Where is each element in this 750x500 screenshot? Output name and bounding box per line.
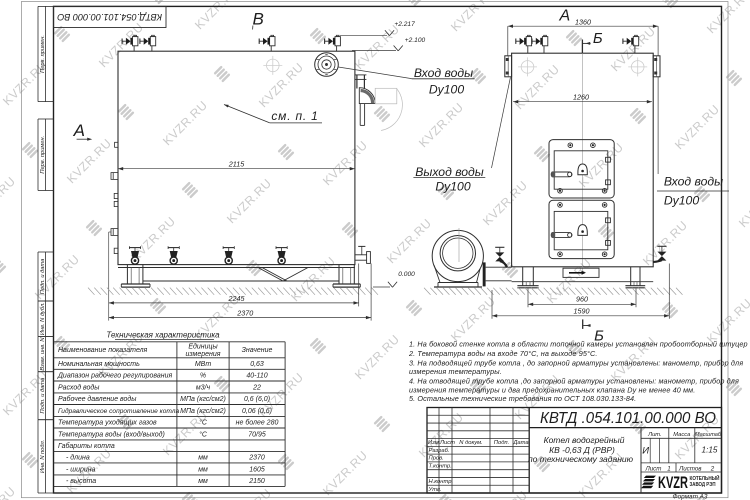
svg-text:Значение: Значение bbox=[242, 347, 273, 354]
svg-text:%: % bbox=[200, 373, 206, 380]
svg-text:мм: мм bbox=[198, 455, 208, 462]
svg-text:2. Температура воды на входе: 2. Температура воды на входе 70°С, на вы… bbox=[408, 349, 598, 358]
svg-text:Т.контр.: Т.контр. bbox=[429, 463, 452, 469]
svg-text:Б: Б bbox=[593, 30, 603, 47]
svg-text:Утв.: Утв. bbox=[428, 487, 442, 493]
svg-text:КВТД .054.101.00.000 ВО: КВТД .054.101.00.000 ВО bbox=[540, 410, 716, 427]
svg-text:Вход воды: Вход воды bbox=[414, 66, 473, 80]
svg-text:Габариты котла: Габариты котла bbox=[58, 442, 115, 450]
svg-text:2150: 2150 bbox=[248, 478, 265, 485]
svg-text:1: 1 bbox=[667, 465, 670, 472]
svg-text:+2.100: +2.100 bbox=[405, 37, 426, 44]
svg-text:2370: 2370 bbox=[236, 308, 253, 317]
svg-text:1360: 1360 bbox=[575, 17, 591, 26]
svg-text:1. На боковой стенке котла в: 1. На боковой стенке котла в области топ… bbox=[409, 340, 748, 349]
svg-text:Подп. и дата: Подп. и дата bbox=[40, 259, 46, 295]
svg-text:Номинальная мощность: Номинальная мощность bbox=[58, 361, 140, 368]
svg-text:А: А bbox=[559, 8, 571, 25]
svg-text:м3/ч: м3/ч bbox=[196, 385, 211, 392]
svg-text:Лист: Лист bbox=[645, 465, 662, 472]
svg-text:- высота: - высота bbox=[66, 478, 96, 485]
svg-text:Изм.: Изм. bbox=[428, 440, 440, 446]
svg-text:измерения: измерения bbox=[185, 351, 220, 358]
svg-text:по техническому заданию: по техническому заданию bbox=[528, 454, 634, 464]
svg-text:МВт: МВт bbox=[195, 361, 212, 368]
svg-text:И: И bbox=[642, 446, 649, 457]
svg-text:4. На отводящей трубе котла ,: 4. На отводящей трубе котла ,до запорной… bbox=[409, 376, 739, 385]
svg-text:2245: 2245 bbox=[228, 294, 246, 303]
svg-text:Температура воды (вход/выход): Температура воды (вход/выход) bbox=[58, 431, 165, 439]
svg-text:Техническая характеристика: Техническая характеристика bbox=[106, 331, 220, 340]
svg-text:Листов: Листов bbox=[678, 465, 702, 472]
svg-text:N докум.: N докум. bbox=[459, 440, 482, 446]
svg-text:Инв. N подл.: Инв. N подл. bbox=[40, 440, 46, 473]
svg-text:1605: 1605 bbox=[249, 467, 265, 474]
svg-text:В: В bbox=[253, 9, 264, 28]
svg-text:KVZR: KVZR bbox=[658, 474, 688, 492]
svg-text:Инв. N дубл.: Инв. N дубл. bbox=[40, 302, 46, 335]
svg-text:Разраб.: Разраб. bbox=[429, 448, 450, 454]
svg-text:Dy100: Dy100 bbox=[664, 194, 699, 208]
svg-text:70/95: 70/95 bbox=[248, 432, 266, 439]
svg-text:22: 22 bbox=[252, 385, 261, 392]
svg-text:0,06 (0,6): 0,06 (0,6) bbox=[242, 408, 272, 415]
svg-text:0,6 (6,0): 0,6 (6,0) bbox=[244, 396, 270, 403]
svg-text:МПа (кгс/см2): МПа (кгс/см2) bbox=[180, 408, 226, 415]
svg-text:1590: 1590 bbox=[574, 307, 590, 316]
svg-text:1:15: 1:15 bbox=[702, 445, 718, 454]
svg-text:Рабочее давление воды: Рабочее давление воды bbox=[58, 395, 137, 403]
svg-text:МПа (кгс/см2): МПа (кгс/см2) bbox=[180, 396, 226, 403]
svg-text:ЗАВОД РЭП: ЗАВОД РЭП bbox=[690, 482, 716, 488]
svg-text:3. На подводящей трубе котла: 3. На подводящей трубе котла , до запорн… bbox=[409, 358, 743, 367]
svg-text:Подп.: Подп. bbox=[494, 440, 509, 446]
svg-text:2115: 2115 bbox=[228, 159, 245, 168]
svg-text:Диапазон рабочего регулировани: Диапазон рабочего регулирования bbox=[57, 372, 173, 380]
svg-text:Выход воды: Выход воды bbox=[415, 165, 484, 179]
svg-text:+2.217: +2.217 bbox=[394, 21, 415, 28]
svg-text:Формат А3: Формат А3 bbox=[673, 493, 708, 500]
svg-text:1260: 1260 bbox=[573, 92, 589, 101]
svg-text:Перв. примен.: Перв. примен. bbox=[40, 136, 46, 174]
svg-text:Гидравлическое сопротивление к: Гидравлическое сопротивление котла bbox=[58, 407, 179, 415]
svg-text:Наименование показателя: Наименование показателя bbox=[58, 347, 148, 354]
svg-text:А: А bbox=[73, 121, 85, 140]
svg-text:Dy100: Dy100 bbox=[435, 180, 470, 194]
svg-text:Масштаб: Масштаб bbox=[695, 432, 722, 438]
svg-text:- длина: - длина bbox=[66, 454, 90, 462]
svg-text:КВТД.054.101.00.000 ВО: КВТД.054.101.00.000 ВО bbox=[57, 12, 162, 22]
svg-text:см. п. 1: см. п. 1 bbox=[271, 109, 318, 123]
svg-text:Пров.: Пров. bbox=[429, 456, 444, 462]
svg-text:960: 960 bbox=[576, 295, 588, 304]
svg-text:2370: 2370 bbox=[248, 455, 265, 462]
svg-text:Dy100: Dy100 bbox=[429, 83, 464, 97]
svg-text:Перв. примен.: Перв. примен. bbox=[40, 35, 46, 73]
svg-text:КОТЕЛЬНЫЙ: КОТЕЛЬНЫЙ bbox=[690, 474, 720, 482]
svg-text:0,63: 0,63 bbox=[250, 361, 264, 368]
svg-text:Лит.: Лит. bbox=[647, 432, 662, 438]
svg-text:5. Остальные технические треб: 5. Остальные технические требования по О… bbox=[409, 394, 636, 403]
svg-text:Расход воды: Расход воды bbox=[58, 384, 100, 392]
svg-text:Температура уходящих газов: Температура уходящих газов bbox=[58, 419, 157, 427]
svg-text:- ширина: - ширина bbox=[66, 467, 96, 474]
svg-text:Вход воды: Вход воды bbox=[664, 175, 723, 189]
svg-text:40-110: 40-110 bbox=[246, 373, 267, 380]
svg-text:не более 280: не более 280 bbox=[236, 419, 279, 427]
svg-text:2: 2 bbox=[710, 465, 715, 472]
svg-text:°С: °С bbox=[199, 419, 208, 427]
svg-text:Масса: Масса bbox=[673, 432, 691, 438]
svg-text:Н.контр.: Н.контр. bbox=[429, 479, 454, 485]
svg-text:измерения температуры.: измерения температуры. bbox=[409, 367, 502, 376]
svg-text:Подп. и дата: Подп. и дата bbox=[40, 378, 46, 414]
svg-text:Лист: Лист bbox=[439, 440, 455, 446]
svg-text:мм: мм bbox=[198, 478, 208, 485]
svg-text:Котел водогрейный: Котел водогрейный bbox=[544, 435, 625, 445]
svg-text:Взам. инв. N: Взам. инв. N bbox=[40, 337, 46, 371]
svg-text:Единицы: Единицы bbox=[188, 342, 218, 350]
svg-text:Дата: Дата bbox=[512, 440, 529, 446]
svg-text:мм: мм bbox=[198, 467, 208, 474]
svg-text:°С: °С bbox=[199, 431, 208, 439]
svg-text:0.000: 0.000 bbox=[398, 271, 415, 278]
